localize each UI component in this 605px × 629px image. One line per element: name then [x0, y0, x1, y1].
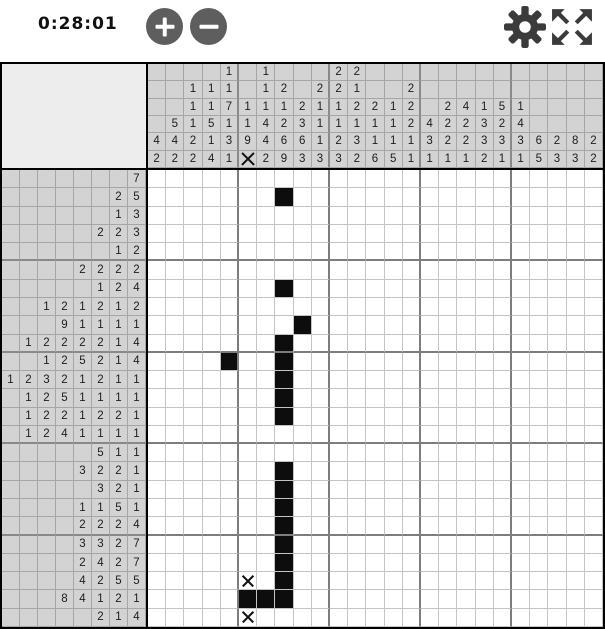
column-clue-cell[interactable]: 1 — [257, 64, 275, 81]
grid-cell[interactable] — [312, 207, 330, 225]
column-clue-cell[interactable] — [567, 99, 585, 116]
row-clue-cell[interactable]: 1 — [128, 316, 146, 334]
grid-cell[interactable] — [366, 225, 384, 243]
row-clue-cell[interactable] — [38, 462, 56, 480]
grid-cell[interactable] — [275, 261, 293, 279]
grid-cell[interactable] — [385, 243, 403, 261]
row-clue-cell[interactable]: 2 — [74, 517, 92, 535]
grid-cell[interactable] — [403, 170, 421, 188]
grid-cell[interactable] — [166, 170, 184, 188]
grid-cell[interactable] — [403, 280, 421, 298]
grid-cell[interactable] — [330, 572, 348, 590]
grid-cell[interactable] — [148, 335, 166, 353]
column-clue-cell[interactable] — [366, 81, 384, 98]
grid-cell[interactable] — [148, 408, 166, 426]
grid-cell[interactable] — [385, 609, 403, 627]
grid-cell[interactable] — [385, 371, 403, 389]
column-clue-cell[interactable]: 2 — [439, 99, 457, 116]
grid-cell[interactable] — [294, 481, 312, 499]
column-clue-cell[interactable]: 1 — [366, 116, 384, 133]
row-clue-cell[interactable]: 2 — [38, 335, 56, 353]
grid-cell[interactable] — [294, 261, 312, 279]
row-clue-cell[interactable]: 1 — [110, 298, 128, 316]
grid-cell[interactable] — [184, 243, 202, 261]
grid-cell[interactable] — [275, 408, 293, 426]
column-clue-cell[interactable]: 1 — [494, 151, 512, 168]
grid-cell[interactable] — [385, 590, 403, 608]
row-clue-cell[interactable] — [110, 170, 128, 188]
row-clue-cell[interactable]: 2 — [56, 408, 74, 426]
grid-cell[interactable] — [330, 389, 348, 407]
grid-cell[interactable] — [239, 444, 257, 462]
grid-cell[interactable] — [148, 572, 166, 590]
grid-cell[interactable] — [221, 444, 239, 462]
grid-cell[interactable] — [257, 389, 275, 407]
row-clue-cell[interactable]: 2 — [110, 536, 128, 554]
grid-cell[interactable] — [203, 261, 221, 279]
column-clue-cell[interactable]: 1 — [184, 99, 202, 116]
grid-cell[interactable] — [548, 280, 566, 298]
grid-cell[interactable] — [348, 170, 366, 188]
grid-cell[interactable] — [548, 462, 566, 480]
column-clue-cell[interactable]: 3 — [567, 151, 585, 168]
grid-cell[interactable] — [385, 170, 403, 188]
row-clue-cell[interactable] — [20, 481, 38, 499]
grid-cell[interactable] — [548, 426, 566, 444]
grid-cell[interactable] — [385, 261, 403, 279]
column-clue-cell[interactable]: 2 — [403, 99, 421, 116]
column-clue-cell[interactable]: 3 — [348, 133, 366, 150]
grid-cell[interactable] — [567, 590, 585, 608]
grid-cell[interactable] — [239, 280, 257, 298]
row-clue-cell[interactable] — [74, 481, 92, 499]
grid-cell[interactable] — [530, 280, 548, 298]
row-clue-cell[interactable]: 7 — [128, 554, 146, 572]
row-clue-cell[interactable]: 5 — [110, 572, 128, 590]
grid-cell[interactable] — [257, 517, 275, 535]
grid-cell[interactable] — [312, 280, 330, 298]
grid-cell[interactable] — [457, 572, 475, 590]
grid-cell[interactable] — [512, 499, 530, 517]
grid-cell[interactable] — [512, 243, 530, 261]
row-clue-cell[interactable]: 2 — [74, 554, 92, 572]
grid-cell[interactable] — [385, 554, 403, 572]
grid-cell[interactable] — [403, 371, 421, 389]
grid-cell[interactable] — [421, 444, 439, 462]
grid-cell[interactable] — [457, 280, 475, 298]
grid-cell[interactable] — [275, 481, 293, 499]
column-clue-cell[interactable]: 6 — [294, 133, 312, 150]
grid-cell[interactable] — [530, 481, 548, 499]
grid-cell[interactable] — [166, 371, 184, 389]
grid-cell[interactable] — [366, 353, 384, 371]
column-clue-cell[interactable]: 1 — [403, 151, 421, 168]
row-clue-cell[interactable] — [2, 481, 20, 499]
grid-cell[interactable] — [275, 444, 293, 462]
grid-cell[interactable] — [330, 444, 348, 462]
grid-cell[interactable] — [184, 207, 202, 225]
column-clue-cell[interactable] — [203, 64, 221, 81]
row-clue-cell[interactable]: 2 — [110, 280, 128, 298]
grid-cell[interactable] — [530, 536, 548, 554]
row-clue-cell[interactable]: 1 — [128, 462, 146, 480]
grid-cell[interactable] — [494, 554, 512, 572]
grid-cell[interactable] — [294, 316, 312, 334]
column-clue-cell[interactable]: 2 — [585, 133, 603, 150]
grid-cell[interactable] — [512, 554, 530, 572]
grid-cell[interactable] — [548, 225, 566, 243]
grid-cell[interactable] — [439, 316, 457, 334]
row-clue-cell[interactable]: 2 — [56, 371, 74, 389]
grid-cell[interactable] — [403, 444, 421, 462]
grid-cell[interactable] — [330, 499, 348, 517]
grid-cell[interactable] — [312, 499, 330, 517]
grid-cell[interactable] — [166, 590, 184, 608]
grid-cell[interactable] — [439, 408, 457, 426]
grid-cell[interactable] — [403, 316, 421, 334]
column-clue-cell[interactable]: 2 — [312, 81, 330, 98]
column-clue-cell[interactable]: 3 — [476, 116, 494, 133]
grid-cell[interactable] — [203, 298, 221, 316]
column-clue-cell[interactable]: 3 — [494, 133, 512, 150]
grid-cell[interactable] — [275, 188, 293, 206]
row-clue-cell[interactable]: 1 — [128, 444, 146, 462]
grid-cell[interactable] — [294, 517, 312, 535]
column-clue-cell[interactable]: 5 — [203, 116, 221, 133]
grid-cell[interactable] — [512, 426, 530, 444]
grid-cell[interactable] — [203, 462, 221, 480]
row-clue-cell[interactable] — [2, 408, 20, 426]
column-clue-cell[interactable]: 2 — [348, 151, 366, 168]
grid-cell[interactable] — [439, 261, 457, 279]
row-clue-cell[interactable] — [56, 554, 74, 572]
grid-cell[interactable] — [330, 462, 348, 480]
grid-cell[interactable] — [166, 243, 184, 261]
row-clue-cell[interactable]: 5 — [92, 444, 110, 462]
grid-cell[interactable] — [494, 481, 512, 499]
grid-cell[interactable] — [348, 371, 366, 389]
row-clue-cell[interactable]: 4 — [128, 335, 146, 353]
column-clue-cell[interactable] — [166, 99, 184, 116]
grid-cell[interactable] — [421, 207, 439, 225]
column-clue-cell[interactable] — [366, 64, 384, 81]
row-clue-cell[interactable] — [2, 225, 20, 243]
grid-cell[interactable] — [457, 188, 475, 206]
grid-cell[interactable] — [457, 335, 475, 353]
grid-cell[interactable] — [439, 609, 457, 627]
grid-cell[interactable] — [239, 207, 257, 225]
grid-cell[interactable] — [530, 554, 548, 572]
grid-cell[interactable] — [512, 188, 530, 206]
grid-cell[interactable] — [494, 371, 512, 389]
column-clue-cell[interactable]: 1 — [403, 133, 421, 150]
row-clue-cell[interactable]: 2 — [92, 371, 110, 389]
grid-cell[interactable] — [166, 353, 184, 371]
grid-cell[interactable] — [403, 609, 421, 627]
grid-cell[interactable] — [348, 188, 366, 206]
grid-cell[interactable] — [148, 609, 166, 627]
column-clue-cell[interactable]: 1 — [512, 151, 530, 168]
row-clue-cell[interactable]: 1 — [110, 371, 128, 389]
row-clue-cell[interactable] — [56, 481, 74, 499]
row-clue-cell[interactable]: 3 — [92, 481, 110, 499]
grid-cell[interactable] — [385, 389, 403, 407]
grid-cell[interactable] — [221, 280, 239, 298]
grid-cell[interactable] — [476, 261, 494, 279]
column-clue-cell[interactable]: 1 — [385, 133, 403, 150]
grid-cell[interactable] — [203, 188, 221, 206]
column-clue-cell[interactable]: 3 — [512, 133, 530, 150]
grid-cell[interactable] — [512, 207, 530, 225]
row-clue-cell[interactable]: 2 — [128, 298, 146, 316]
row-clue-cell[interactable] — [38, 316, 56, 334]
grid-cell[interactable] — [585, 444, 603, 462]
grid-cell[interactable] — [348, 225, 366, 243]
column-clue-cell[interactable]: 1 — [512, 99, 530, 116]
grid-cell[interactable] — [585, 316, 603, 334]
row-clue-cell[interactable]: 1 — [92, 426, 110, 444]
row-clue-cell[interactable]: 1 — [92, 499, 110, 517]
row-clue-cell[interactable] — [74, 609, 92, 627]
column-clue-cell[interactable] — [421, 64, 439, 81]
row-clue-cell[interactable] — [56, 170, 74, 188]
grid-cell[interactable] — [530, 298, 548, 316]
grid-cell[interactable] — [457, 353, 475, 371]
row-clue-cell[interactable] — [2, 170, 20, 188]
grid-cell[interactable] — [257, 335, 275, 353]
grid-cell[interactable] — [512, 316, 530, 334]
column-clue-cell[interactable]: 9 — [275, 151, 293, 168]
grid-cell[interactable] — [494, 243, 512, 261]
grid-cell[interactable] — [421, 536, 439, 554]
grid-cell[interactable] — [203, 353, 221, 371]
row-clue-cell[interactable] — [2, 590, 20, 608]
grid-cell[interactable] — [439, 207, 457, 225]
grid-cell[interactable] — [476, 481, 494, 499]
row-clue-cell[interactable]: 1 — [110, 609, 128, 627]
grid-cell[interactable] — [275, 353, 293, 371]
grid-cell[interactable] — [348, 517, 366, 535]
grid-cell[interactable] — [294, 298, 312, 316]
grid-cell[interactable] — [512, 225, 530, 243]
grid-cell[interactable] — [221, 499, 239, 517]
column-clue-cell[interactable] — [585, 81, 603, 98]
grid-cell[interactable] — [548, 590, 566, 608]
grid-cell[interactable] — [512, 389, 530, 407]
grid-cell[interactable] — [203, 426, 221, 444]
grid-cell[interactable] — [203, 609, 221, 627]
grid-cell[interactable] — [512, 462, 530, 480]
grid-cell[interactable] — [457, 298, 475, 316]
row-clue-cell[interactable] — [38, 572, 56, 590]
row-clue-cell[interactable] — [74, 444, 92, 462]
row-clue-cell[interactable]: 4 — [74, 590, 92, 608]
grid-cell[interactable] — [512, 170, 530, 188]
grid-cell[interactable] — [184, 572, 202, 590]
grid-cell[interactable] — [366, 389, 384, 407]
grid-cell[interactable] — [348, 536, 366, 554]
row-clue-cell[interactable]: 2 — [92, 298, 110, 316]
grid-cell[interactable] — [439, 481, 457, 499]
grid-cell[interactable] — [421, 243, 439, 261]
grid-cell[interactable] — [548, 353, 566, 371]
grid-cell[interactable] — [330, 426, 348, 444]
grid-cell[interactable] — [567, 335, 585, 353]
grid-cell[interactable] — [385, 499, 403, 517]
row-clue-cell[interactable]: 5 — [128, 572, 146, 590]
grid-cell[interactable] — [203, 243, 221, 261]
grid-cell[interactable] — [403, 243, 421, 261]
grid-cell[interactable] — [330, 261, 348, 279]
grid-cell[interactable] — [439, 335, 457, 353]
grid-cell[interactable] — [548, 261, 566, 279]
row-clue-cell[interactable] — [38, 499, 56, 517]
grid-cell[interactable] — [294, 353, 312, 371]
row-clue-cell[interactable]: 2 — [92, 225, 110, 243]
grid-cell[interactable] — [567, 371, 585, 389]
grid-cell[interactable] — [148, 481, 166, 499]
grid-cell[interactable] — [512, 517, 530, 535]
grid-cell[interactable] — [421, 335, 439, 353]
grid-cell[interactable] — [166, 316, 184, 334]
grid-cell[interactable] — [403, 590, 421, 608]
grid-cell[interactable] — [148, 316, 166, 334]
grid-cell[interactable] — [585, 225, 603, 243]
grid-cell[interactable] — [257, 554, 275, 572]
grid-cell[interactable] — [585, 554, 603, 572]
grid-cell[interactable] — [184, 536, 202, 554]
row-clue-cell[interactable]: 2 — [92, 517, 110, 535]
column-clue-cell[interactable]: 1 — [275, 99, 293, 116]
grid-cell[interactable] — [239, 426, 257, 444]
row-clue-cell[interactable] — [2, 444, 20, 462]
grid-cell[interactable] — [348, 572, 366, 590]
grid-cell[interactable] — [184, 426, 202, 444]
grid-cell[interactable] — [166, 499, 184, 517]
row-clue-cell[interactable] — [20, 609, 38, 627]
grid-cell[interactable] — [166, 481, 184, 499]
grid-cell[interactable] — [567, 444, 585, 462]
column-clue-cell[interactable]: 1 — [385, 116, 403, 133]
grid-cell[interactable] — [567, 499, 585, 517]
column-clue-cell[interactable]: 1 — [221, 81, 239, 98]
grid-cell[interactable] — [494, 316, 512, 334]
grid-cell[interactable] — [548, 170, 566, 188]
row-clue-cell[interactable] — [56, 207, 74, 225]
row-clue-cell[interactable] — [20, 243, 38, 261]
grid-cell[interactable] — [275, 170, 293, 188]
column-clue-cell[interactable]: 1 — [421, 151, 439, 168]
grid-cell[interactable] — [585, 243, 603, 261]
grid-cell[interactable] — [239, 261, 257, 279]
grid-cell[interactable] — [330, 280, 348, 298]
grid-cell[interactable] — [366, 426, 384, 444]
grid-cell[interactable] — [239, 590, 257, 608]
grid-cell[interactable] — [239, 225, 257, 243]
grid-cell[interactable] — [585, 408, 603, 426]
grid-cell[interactable] — [421, 572, 439, 590]
row-clue-cell[interactable] — [38, 536, 56, 554]
grid-cell[interactable] — [294, 536, 312, 554]
grid-cell[interactable] — [457, 207, 475, 225]
column-clue-cell[interactable] — [239, 64, 257, 81]
grid-cell[interactable] — [476, 536, 494, 554]
grid-cell[interactable] — [366, 554, 384, 572]
grid-cell[interactable] — [439, 389, 457, 407]
column-clue-cell[interactable] — [530, 81, 548, 98]
grid-cell[interactable] — [421, 353, 439, 371]
row-clue-cell[interactable] — [20, 554, 38, 572]
grid-cell[interactable] — [239, 462, 257, 480]
column-clue-cell[interactable] — [294, 81, 312, 98]
grid-cell[interactable] — [257, 280, 275, 298]
column-clue-cell[interactable] — [585, 99, 603, 116]
grid-cell[interactable] — [548, 371, 566, 389]
column-clue-cell[interactable] — [439, 64, 457, 81]
grid-cell[interactable] — [530, 316, 548, 334]
grid-cell[interactable] — [548, 243, 566, 261]
grid-cell[interactable] — [330, 609, 348, 627]
grid-cell[interactable] — [239, 335, 257, 353]
grid-cell[interactable] — [385, 188, 403, 206]
grid-cell[interactable] — [567, 536, 585, 554]
grid-cell[interactable] — [494, 572, 512, 590]
grid-cell[interactable] — [203, 389, 221, 407]
grid-cell[interactable] — [494, 444, 512, 462]
grid-cell[interactable] — [385, 536, 403, 554]
grid-cell[interactable] — [166, 188, 184, 206]
column-clue-cell[interactable]: 4 — [148, 133, 166, 150]
grid-cell[interactable] — [567, 243, 585, 261]
grid-cell[interactable] — [548, 481, 566, 499]
grid-cell[interactable] — [239, 298, 257, 316]
column-clue-cell[interactable]: 5 — [385, 151, 403, 168]
grid-cell[interactable] — [366, 261, 384, 279]
row-clue-cell[interactable]: 1 — [128, 481, 146, 499]
grid-cell[interactable] — [585, 188, 603, 206]
grid-cell[interactable] — [512, 572, 530, 590]
grid-cell[interactable] — [148, 371, 166, 389]
grid-cell[interactable] — [585, 572, 603, 590]
grid-cell[interactable] — [494, 536, 512, 554]
grid-cell[interactable] — [148, 207, 166, 225]
grid-cell[interactable] — [275, 335, 293, 353]
grid-cell[interactable] — [494, 499, 512, 517]
column-clue-cell[interactable]: 4 — [257, 116, 275, 133]
grid-cell[interactable] — [403, 207, 421, 225]
grid-cell[interactable] — [330, 408, 348, 426]
grid-cell[interactable] — [148, 462, 166, 480]
grid-cell[interactable] — [330, 353, 348, 371]
row-clue-cell[interactable]: 5 — [110, 499, 128, 517]
grid-cell[interactable] — [312, 481, 330, 499]
grid-cell[interactable] — [294, 225, 312, 243]
grid-cell[interactable] — [221, 462, 239, 480]
grid-cell[interactable] — [184, 408, 202, 426]
grid-cell[interactable] — [585, 170, 603, 188]
grid-cell[interactable] — [348, 280, 366, 298]
grid-cell[interactable] — [203, 536, 221, 554]
grid-cell[interactable] — [403, 499, 421, 517]
grid-cell[interactable] — [184, 280, 202, 298]
grid-cell[interactable] — [585, 389, 603, 407]
row-clue-cell[interactable] — [74, 170, 92, 188]
grid-cell[interactable] — [567, 389, 585, 407]
grid-cell[interactable] — [148, 170, 166, 188]
grid-cell[interactable] — [530, 408, 548, 426]
grid-cell[interactable] — [348, 408, 366, 426]
row-clue-cell[interactable] — [2, 243, 20, 261]
